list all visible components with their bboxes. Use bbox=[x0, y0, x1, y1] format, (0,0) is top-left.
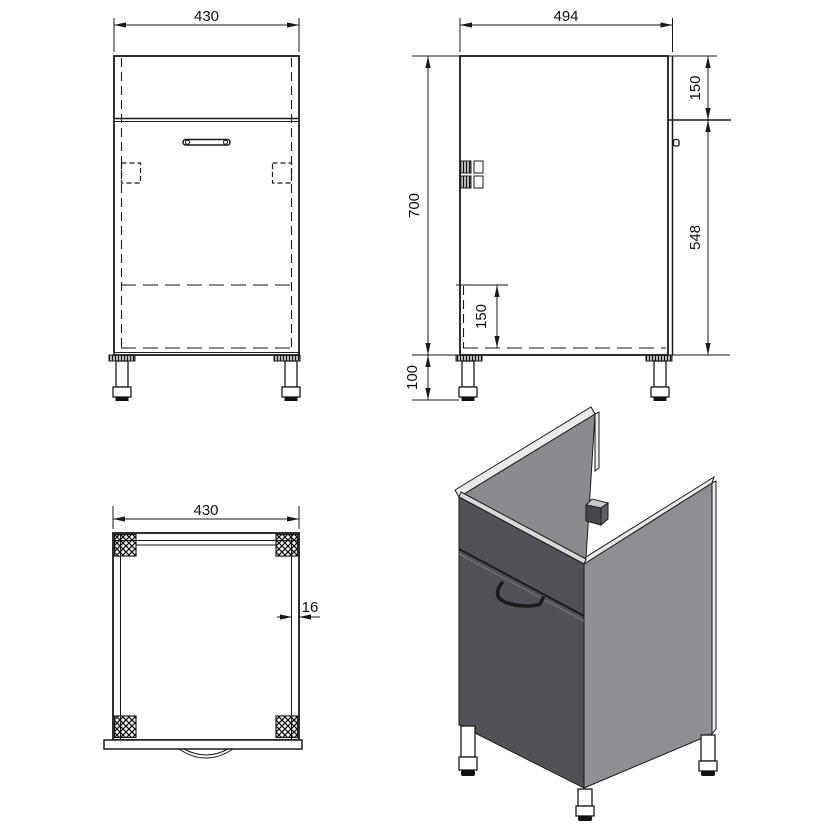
dim-label: 150 bbox=[687, 75, 704, 100]
iso-leg-back-right bbox=[699, 735, 717, 776]
iso-leg-front-left bbox=[459, 726, 477, 776]
dim-label: 100 bbox=[404, 365, 421, 390]
left-panel-back-edge bbox=[595, 412, 599, 471]
corner-bracket bbox=[115, 716, 137, 738]
dim-label: 494 bbox=[553, 8, 578, 25]
door-strip bbox=[104, 740, 302, 749]
dim-label: 16 bbox=[302, 599, 319, 616]
dim-label: 700 bbox=[406, 193, 423, 218]
corner-bracket bbox=[276, 716, 298, 738]
handle-knob bbox=[674, 140, 680, 147]
corner-bracket bbox=[276, 535, 298, 557]
back-mounting-clip bbox=[586, 499, 608, 525]
dim-label: 150 bbox=[473, 304, 490, 329]
corner-bracket bbox=[115, 535, 137, 557]
front-view: 430 bbox=[109, 8, 300, 401]
cabinet-outline bbox=[114, 56, 299, 355]
carcass-outline bbox=[113, 533, 299, 740]
technical-drawing-canvas: 430 bbox=[0, 0, 830, 830]
right-panel-back-edge bbox=[712, 481, 716, 734]
iso-leg-front-center bbox=[576, 789, 594, 821]
dim-label: 430 bbox=[193, 502, 218, 519]
dim-label: 548 bbox=[687, 225, 704, 250]
dim-label: 430 bbox=[194, 8, 219, 25]
technical-drawing-page: 430 bbox=[0, 0, 830, 830]
cabinet-side-outline bbox=[460, 56, 668, 355]
door-handle bbox=[183, 140, 230, 146]
top-view: 430 16 bbox=[104, 502, 320, 758]
